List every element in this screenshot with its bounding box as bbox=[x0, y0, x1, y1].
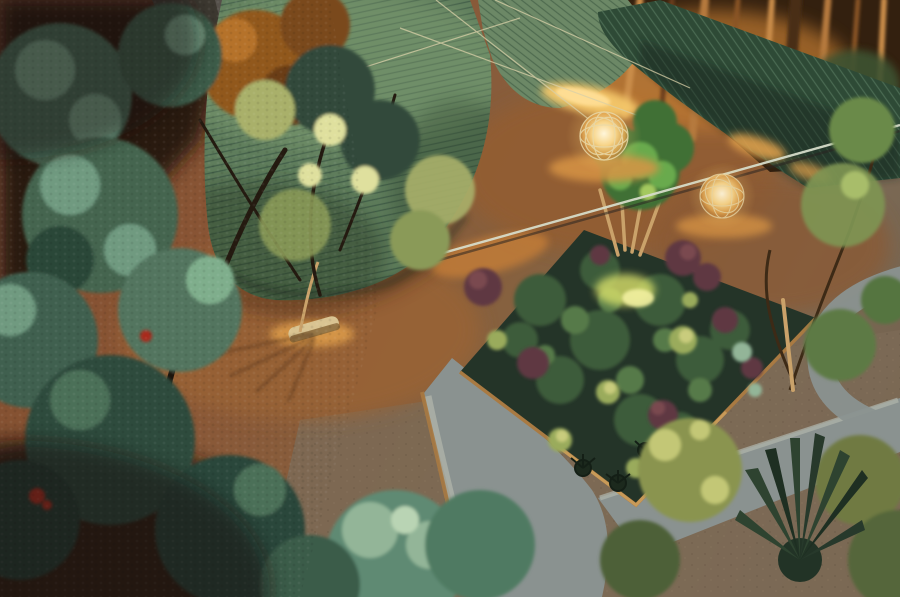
foliage-blob bbox=[829, 97, 895, 163]
scene-canvas bbox=[0, 0, 900, 597]
foliage-blob bbox=[690, 420, 710, 440]
bed-silver-plant bbox=[732, 342, 752, 362]
bed-uplight-core bbox=[622, 289, 654, 307]
foliage-blob bbox=[801, 163, 885, 247]
foliage-blob bbox=[425, 490, 535, 597]
foliage-blob bbox=[600, 520, 680, 597]
bed-silver-plant bbox=[748, 383, 762, 397]
foliage-blob bbox=[649, 429, 681, 461]
foliage-blob bbox=[841, 171, 869, 199]
foliage-blob bbox=[701, 476, 729, 504]
rendered-scene bbox=[0, 0, 900, 597]
foliage-blob bbox=[638, 418, 742, 522]
foliage-blob bbox=[390, 210, 450, 270]
foliage-blob bbox=[391, 506, 419, 534]
foliage-blob bbox=[804, 309, 876, 381]
foliage-blob bbox=[342, 502, 398, 558]
